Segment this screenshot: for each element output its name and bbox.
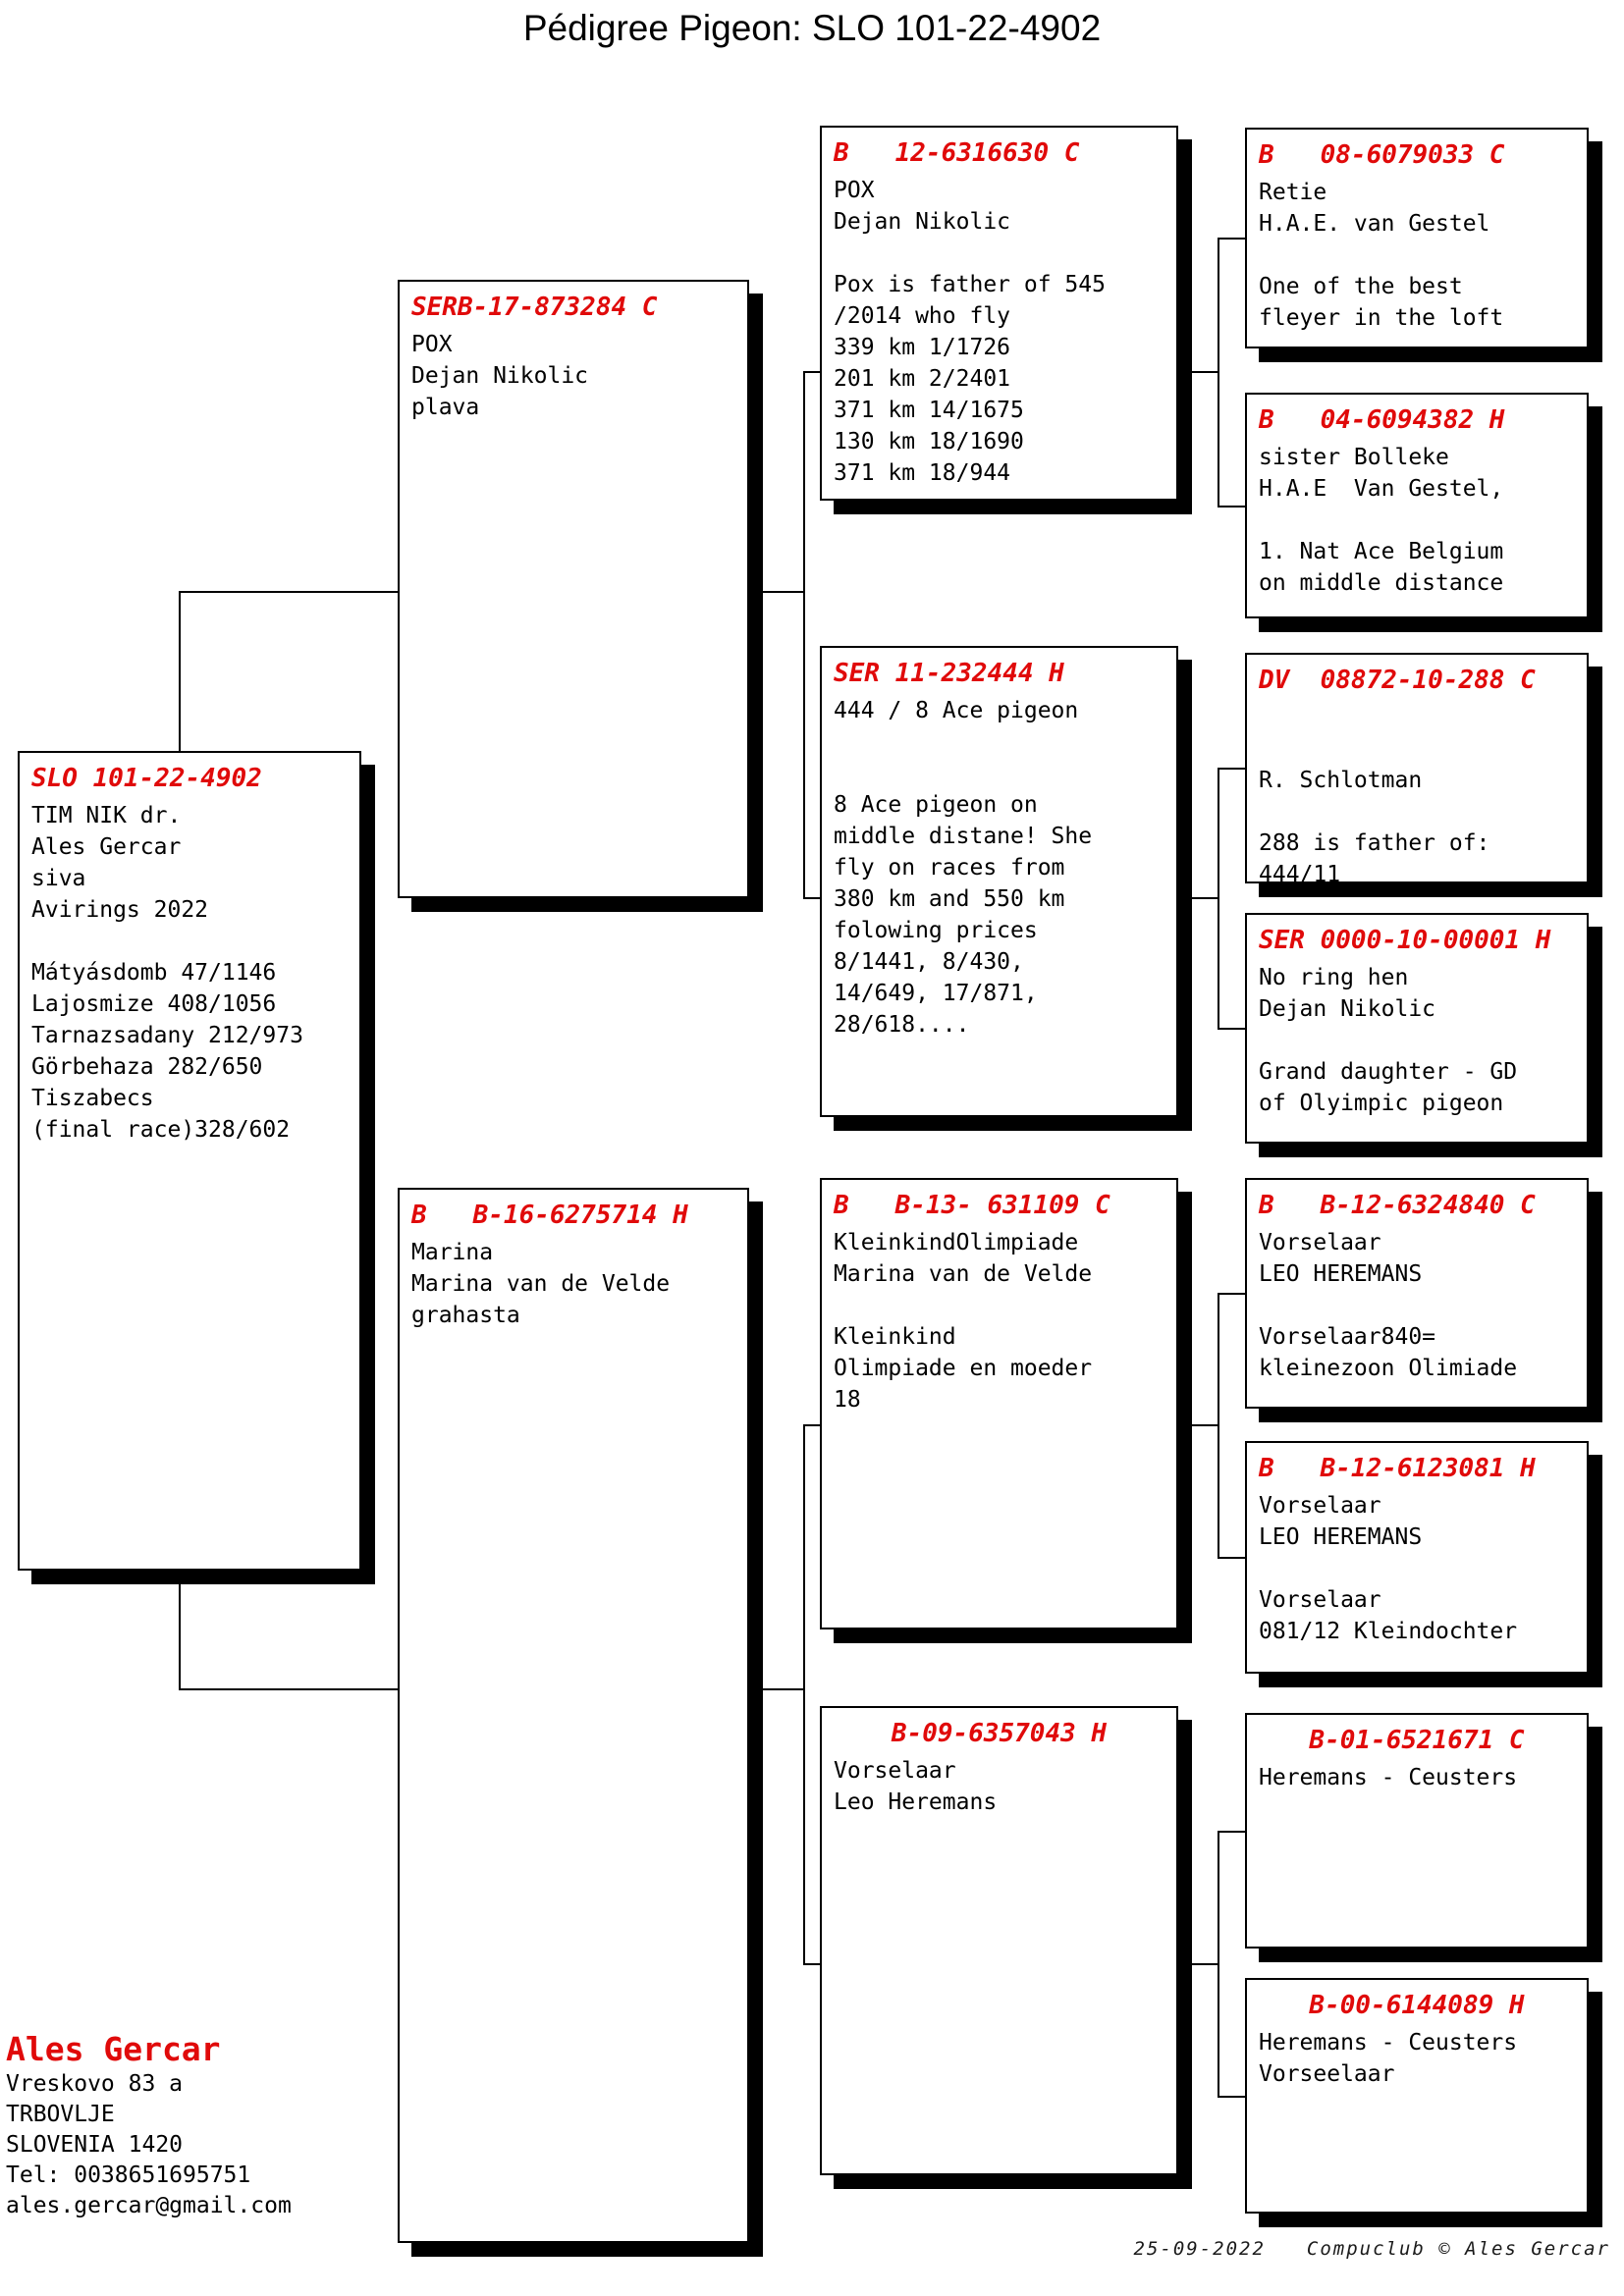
connector-line xyxy=(803,1963,820,1965)
pedigree-box-great-grandparent-8: B-00-6144089 H Heremans - Ceusters Vorse… xyxy=(1245,1978,1589,2214)
pedigree-box-paternal-grandfather: B 12-6316630 C POX Dejan Nikolic Pox is … xyxy=(820,126,1178,501)
pedigree-box-great-grandparent-6: B B-12-6123081 H Vorselaar LEO HEREMANS … xyxy=(1245,1441,1589,1674)
page-title: Pédigree Pigeon: SLO 101-22-4902 xyxy=(0,8,1624,49)
connector-line xyxy=(1218,1028,1245,1030)
pigeon-details: Vorselaar Leo Heremans xyxy=(834,1755,1164,1818)
breeder-name: Ales Gercar xyxy=(6,2030,292,2069)
pedigree-box-maternal-grandfather: B B-13- 631109 C KleinkindOlimpiade Mari… xyxy=(820,1178,1178,1629)
connector-line xyxy=(1218,238,1245,240)
connector-line xyxy=(1218,1831,1219,2098)
pedigree-box-paternal-grandmother: SER 11-232444 H 444 / 8 Ace pigeon 8 Ace… xyxy=(820,646,1178,1117)
contact-block: Ales Gercar Vreskovo 83 a TRBOVLJE SLOVE… xyxy=(6,2030,292,2221)
footer-date: 25-09-2022 xyxy=(1134,2238,1266,2260)
ring-number: SERB-17-873284 C xyxy=(411,290,735,325)
connector-line xyxy=(179,1688,398,1690)
connector-line xyxy=(803,1424,805,1965)
pigeon-details: POX Dejan Nikolic plava xyxy=(411,329,735,423)
connector-line xyxy=(1218,768,1219,1030)
pigeon-details: POX Dejan Nikolic Pox is father of 545 /… xyxy=(834,175,1164,489)
pedigree-box-maternal-grandmother: B-09-6357043 H Vorselaar Leo Heremans xyxy=(820,1706,1178,2175)
footer-credit: Compuclub © Ales Gercar xyxy=(1307,2238,1610,2260)
ring-number: B B-13- 631109 C xyxy=(834,1188,1164,1223)
pedigree-box-great-grandparent-1: B 08-6079033 C Retie H.A.E. van Gestel O… xyxy=(1245,128,1589,348)
connector-line xyxy=(749,591,803,593)
ring-number: B 12-6316630 C xyxy=(834,135,1164,171)
connector-line xyxy=(749,1688,803,1690)
connector-line xyxy=(1218,768,1245,770)
pigeon-details: Marina Marina van de Velde grahasta xyxy=(411,1237,735,1331)
connector-line xyxy=(1218,1831,1245,1833)
connector-line xyxy=(803,897,820,899)
connector-line xyxy=(1218,1293,1245,1295)
pigeon-details: Vorselaar LEO HEREMANS Vorselaar 081/12 … xyxy=(1259,1490,1575,1647)
pigeon-details: Retie H.A.E. van Gestel One of the best … xyxy=(1259,177,1575,334)
pigeon-details: R. Schlotman 288 is father of: 444/11 xyxy=(1259,702,1575,890)
pigeon-details: Heremans - Ceusters xyxy=(1259,1762,1575,1793)
connector-line xyxy=(1178,371,1218,373)
pedigree-page: Pédigree Pigeon: SLO 101-22-4902 SLO 101… xyxy=(0,0,1624,2296)
connector-line xyxy=(1178,897,1218,899)
ring-number: B-01-6521671 C xyxy=(1259,1723,1575,1758)
connector-line xyxy=(1218,238,1219,507)
connector-line xyxy=(1218,2096,1245,2098)
pigeon-details: Vorselaar LEO HEREMANS Vorselaar840= kle… xyxy=(1259,1227,1575,1384)
connector-line xyxy=(1218,506,1245,507)
ring-number: B B-12-6324840 C xyxy=(1259,1188,1575,1223)
pedigree-box-great-grandparent-4: SER 0000-10-00001 H No ring hen Dejan Ni… xyxy=(1245,913,1589,1144)
ring-number: B-00-6144089 H xyxy=(1259,1988,1575,2023)
pedigree-box-great-grandparent-3: DV 08872-10-288 C R. Schlotman 288 is fa… xyxy=(1245,653,1589,883)
ring-number: B B-16-6275714 H xyxy=(411,1198,735,1233)
ring-number: B-09-6357043 H xyxy=(834,1716,1164,1751)
ring-number: SER 0000-10-00001 H xyxy=(1259,923,1575,958)
pigeon-details: KleinkindOlimpiade Marina van de Velde K… xyxy=(834,1227,1164,1415)
connector-line xyxy=(1178,1424,1218,1426)
pedigree-box-great-grandparent-5: B B-12-6324840 C Vorselaar LEO HEREMANS … xyxy=(1245,1178,1589,1409)
ring-number: DV 08872-10-288 C xyxy=(1259,663,1575,698)
connector-line xyxy=(1218,1293,1219,1559)
pigeon-details: 444 / 8 Ace pigeon 8 Ace pigeon on middl… xyxy=(834,695,1164,1041)
connector-line xyxy=(179,591,398,593)
pigeon-details: sister Bolleke H.A.E Van Gestel, 1. Nat … xyxy=(1259,442,1575,599)
footer: 25-09-2022Compuclub © Ales Gercar xyxy=(1134,2238,1611,2260)
pigeon-details: TIM NIK dr. Ales Gercar siva Avirings 20… xyxy=(31,800,348,1146)
connector-line xyxy=(803,371,805,899)
connector-line xyxy=(1218,1557,1245,1559)
ring-number: B 08-6079033 C xyxy=(1259,137,1575,173)
pedigree-box-great-grandparent-7: B-01-6521671 C Heremans - Ceusters xyxy=(1245,1713,1589,1949)
connector-line xyxy=(803,1424,820,1426)
pedigree-box-father: SERB-17-873284 C POX Dejan Nikolic plava xyxy=(398,280,749,898)
connector-line xyxy=(1178,1963,1218,1965)
pigeon-details: Heremans - Ceusters Vorseelaar xyxy=(1259,2027,1575,2090)
ring-number: SLO 101-22-4902 xyxy=(31,761,348,796)
pedigree-box-great-grandparent-2: B 04-6094382 H sister Bolleke H.A.E Van … xyxy=(1245,393,1589,618)
breeder-address: Vreskovo 83 a TRBOVLJE SLOVENIA 1420 Tel… xyxy=(6,2069,292,2221)
pedigree-box-mother: B B-16-6275714 H Marina Marina van de Ve… xyxy=(398,1188,749,2243)
ring-number: SER 11-232444 H xyxy=(834,656,1164,691)
ring-number: B 04-6094382 H xyxy=(1259,402,1575,438)
ring-number: B B-12-6123081 H xyxy=(1259,1451,1575,1486)
pedigree-box-subject: SLO 101-22-4902 TIM NIK dr. Ales Gercar … xyxy=(18,751,361,1571)
connector-line xyxy=(803,371,820,373)
pigeon-details: No ring hen Dejan Nikolic Grand daughter… xyxy=(1259,962,1575,1119)
